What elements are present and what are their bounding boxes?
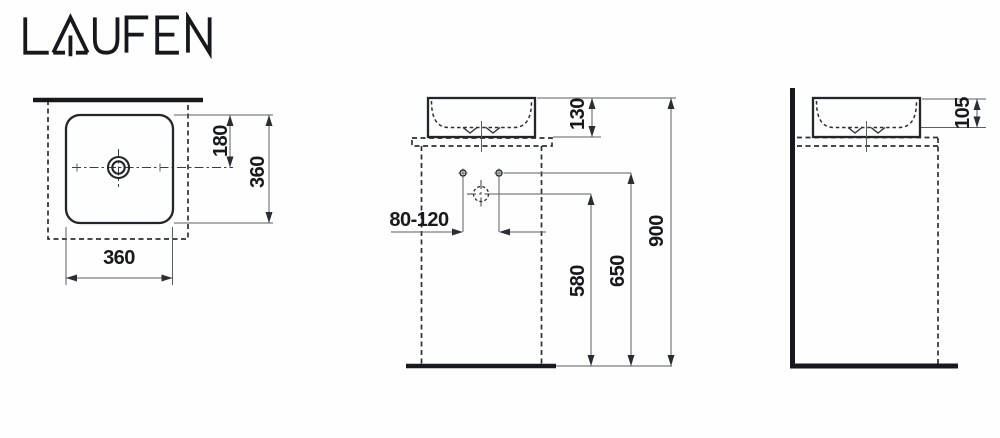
dim-label-basin-height: 130 (567, 98, 589, 130)
top-view-extension-lines (66, 115, 273, 285)
dim-label-bowl-depth: 105 (952, 97, 974, 129)
front-view-extension-lines (537, 98, 676, 137)
dim-label-depth: 360 (247, 156, 269, 188)
front-view-dim-rim-height: 900 (646, 98, 674, 366)
top-view-dim-depth-to-drain: 180 (210, 115, 233, 168)
datasheet-page: LAUFEN (0, 0, 1000, 438)
side-view: 105 (790, 88, 986, 368)
top-view-centerlines (72, 149, 233, 187)
dim-label-width: 360 (103, 247, 135, 269)
front-view-drain-crosshair (467, 180, 591, 208)
front-view: 130 80-120 580 650 (389, 98, 676, 366)
front-view-dim-drain-outlet-height: 580 (567, 194, 594, 366)
dim-label-supply-height: 650 (607, 255, 629, 287)
top-view-basin-outline (66, 115, 173, 223)
top-view-dim-width: 360 (66, 247, 173, 282)
dim-label-rim-height: 900 (646, 215, 668, 247)
front-view-dim-supply-height: 650 (607, 173, 634, 366)
side-view-dim-bowl-depth: 105 (952, 97, 980, 129)
technical-drawing: 180 360 360 (0, 0, 1000, 438)
dim-label-tap-distance: 80-120 (389, 209, 449, 231)
top-view: 180 360 360 (33, 100, 273, 285)
front-view-dim-tap-distance: 80-120 (389, 209, 546, 236)
side-view-pedestal-outline (797, 138, 938, 365)
top-view-dim-depth: 360 (247, 115, 272, 223)
dim-label-depth-to-drain: 180 (210, 125, 232, 157)
dim-label-drain-outlet-height: 580 (567, 265, 589, 297)
front-view-dim-basin-height: 130 (567, 98, 595, 137)
